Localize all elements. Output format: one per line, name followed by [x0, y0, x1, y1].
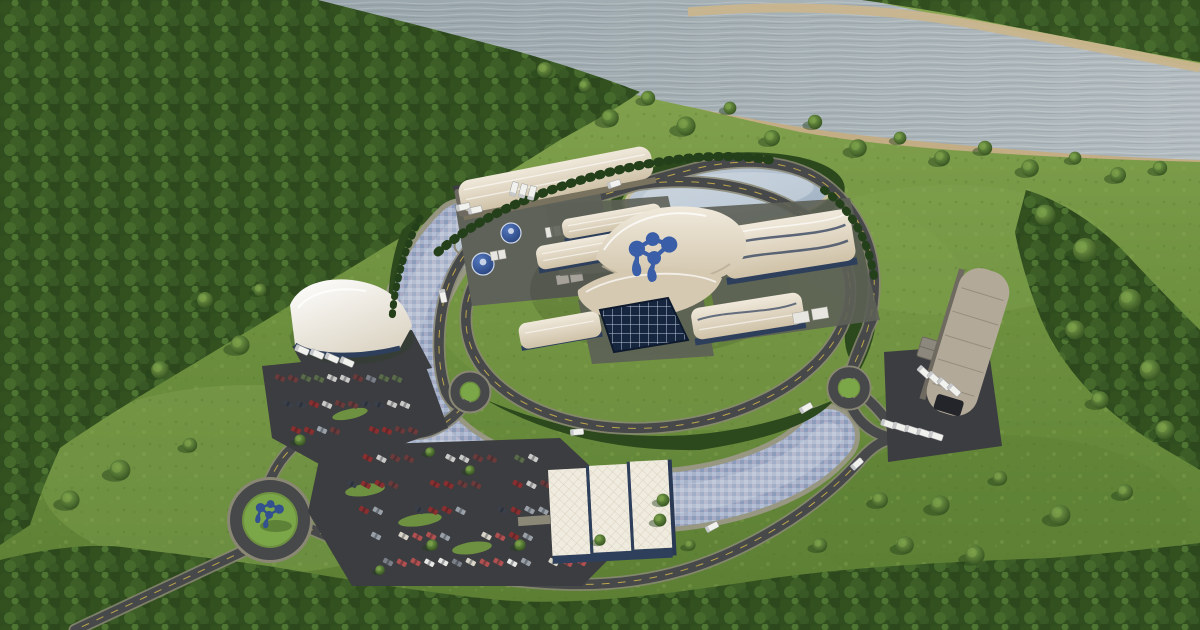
east-ring-roundabout [832, 371, 866, 405]
visitor-roof [548, 460, 673, 556]
west-ring-roundabout [454, 376, 486, 408]
aerial-rendering: Aerial rendering of a riverside small mo… [0, 0, 1200, 630]
truck [570, 428, 584, 435]
entrance-roundabout [234, 484, 306, 556]
scene-canvas: Aerial rendering of a riverside small mo… [0, 0, 1200, 630]
visitor-center [548, 460, 677, 564]
